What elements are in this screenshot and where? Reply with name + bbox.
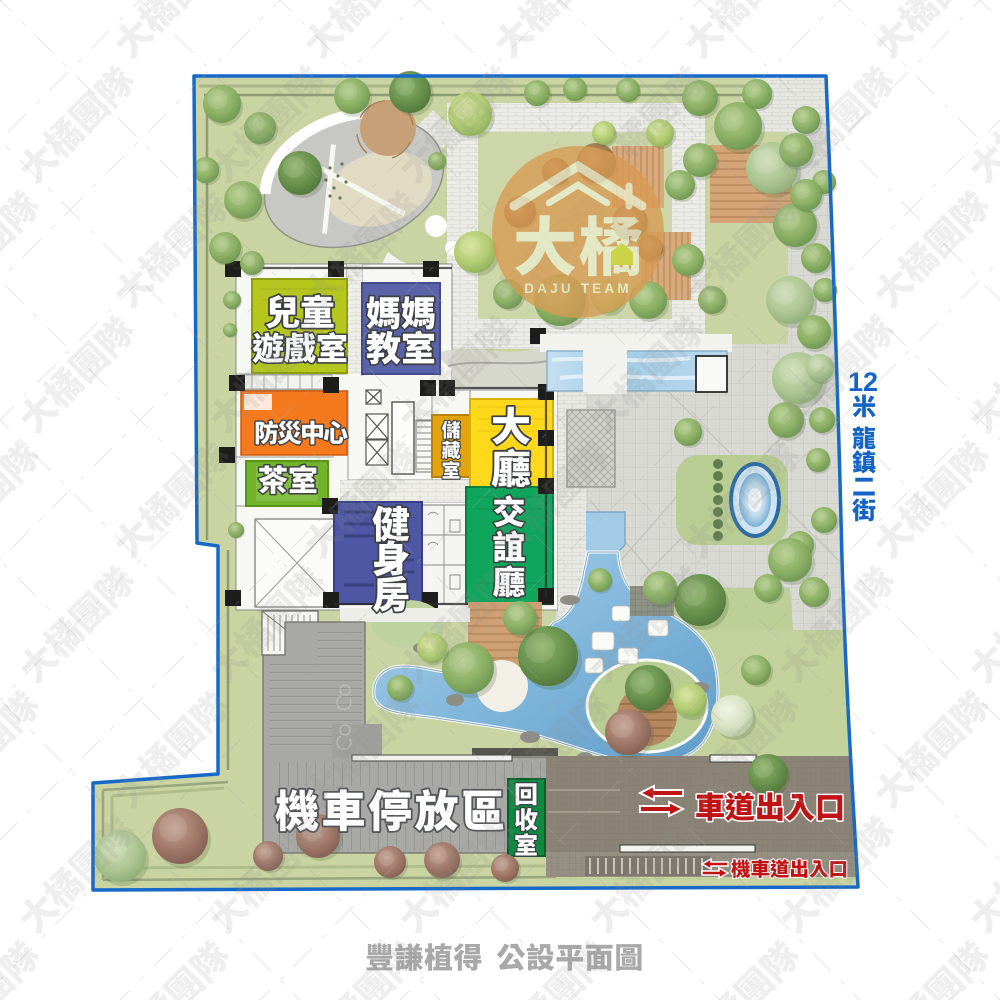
svg-text:DAJU TEAM: DAJU TEAM bbox=[524, 281, 632, 296]
